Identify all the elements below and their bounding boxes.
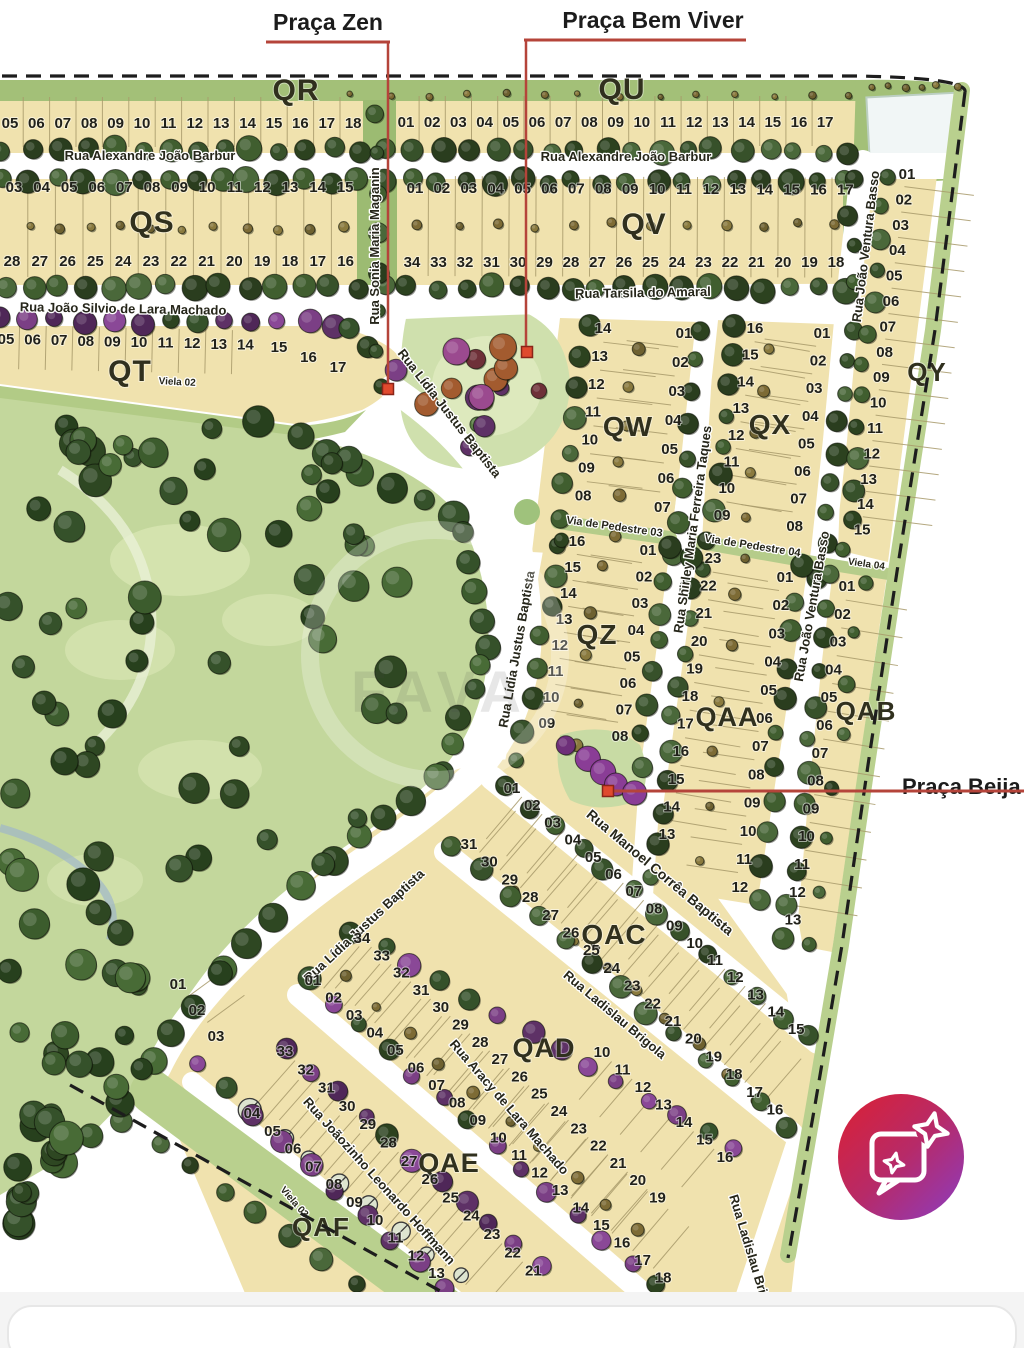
watermark-text: FAVA [351,660,529,725]
lot-number-qac-07: 07 [625,883,642,900]
lot-number-qs-04: 04 [33,179,50,196]
block-label-qaf: QAF [292,1212,350,1242]
praca-beija-label: Praça Beija [902,774,1021,799]
lot-number-qs-26: 26 [59,253,76,270]
lot-number-qad-18: 18 [655,1270,672,1287]
lot-number-qt-11: 11 [158,335,174,352]
lot-number-qaa-15: 15 [668,771,685,788]
lot-number-qae-21: 21 [525,1263,542,1280]
lot-number-qz-08: 08 [612,728,629,745]
lot-number-qt-17: 17 [330,359,347,376]
lot-number-qw-08: 08 [575,487,592,504]
lot-number-qae-28: 28 [380,1135,397,1152]
lot-number-qs-20: 20 [226,253,243,270]
lot-number-qs-15: 15 [337,179,354,196]
lot-number-qad-05: 05 [387,1042,404,1059]
lot-number-qad-26: 26 [511,1068,528,1085]
lot-number-qz-14: 14 [560,585,577,602]
lot-number-qt-16: 16 [300,349,317,366]
masterplan-map: Rua Alexandre João BarburRua Alexandre J… [0,0,1024,1348]
lot-number-qv-12: 12 [703,181,720,198]
lot-number-qv-01: 01 [407,180,424,197]
lot-number-qu-09: 09 [607,114,624,131]
lot-number-qs-21: 21 [198,253,215,270]
lot-number-qv-22: 22 [722,254,739,271]
lot-number-qad-10: 10 [594,1044,611,1061]
lot-number-qr-11: 11 [160,115,176,132]
lot-number-qx-12: 12 [728,427,745,444]
lot-number-qy-05: 05 [886,268,903,285]
lot-number-qaa-12: 12 [732,879,749,896]
lot-number-qr-15: 15 [266,115,283,132]
lot-number-qae-04: 04 [244,1105,261,1122]
praca-marker [522,347,533,358]
lot-number-qab-03: 03 [830,634,847,651]
lot-number-qv-32: 32 [457,254,474,271]
block-label-qu: QU [599,73,646,106]
lot-number-qy-02: 02 [895,191,912,208]
lot-number-qx-08: 08 [786,518,803,535]
lot-number-qt-07: 07 [51,332,68,349]
lot-number-qx-05: 05 [798,435,815,452]
lot-number-qae-01: 01 [170,976,187,993]
lot-number-qad-25: 25 [531,1086,548,1103]
lot-number-qx-02: 02 [810,353,827,370]
lot-number-qw-03: 03 [668,383,685,400]
lot-number-qad-16: 16 [614,1235,631,1252]
lot-number-qab-08: 08 [807,773,824,790]
lot-number-qad-12: 12 [635,1079,652,1096]
lot-number-qv-24: 24 [669,254,686,271]
lot-number-qx-06: 06 [794,463,811,480]
block-label-qaa: QAA [696,702,759,732]
lot-number-qt-14: 14 [237,336,254,353]
lot-number-qr-07: 07 [54,115,71,132]
lot-number-qu-15: 15 [764,114,781,131]
lot-number-qad-16: 16 [717,1149,734,1166]
lot-number-qu-03: 03 [450,114,467,131]
lot-number-qw-10: 10 [581,432,598,449]
lot-number-qae-26: 26 [422,1171,439,1188]
lot-number-qab-01: 01 [839,578,856,595]
lot-number-qz-03: 03 [632,595,649,612]
lot-number-qs-24: 24 [115,253,132,270]
block-label-qs: QS [129,206,174,239]
lot-number-qae-06: 06 [285,1141,302,1158]
lot-number-qx-09: 09 [714,507,731,524]
lot-number-qz-15: 15 [564,559,581,576]
lot-number-qw-14: 14 [595,320,612,337]
lot-number-qac-09: 09 [666,918,683,935]
lot-number-qaa-19: 19 [686,660,703,677]
lot-number-qad-30: 30 [432,999,449,1016]
lot-number-qac-29: 29 [501,871,518,888]
lot-number-qad-04: 04 [366,1025,383,1042]
lot-number-qaa-11: 11 [736,851,752,868]
lot-number-qv-30: 30 [510,254,527,271]
block-label-qv: QV [621,208,666,241]
lot-number-qac-19: 19 [705,1048,722,1065]
lot-number-qac-26: 26 [563,925,580,942]
lot-number-qx-16: 16 [747,320,764,337]
block-label-qad: QAD [513,1033,576,1063]
lot-number-qt-15: 15 [271,339,288,356]
lot-number-qx-10: 10 [718,480,735,497]
lot-number-qad-13: 13 [552,1182,569,1199]
lot-number-qv-17: 17 [837,182,854,199]
lot-number-qt-12: 12 [184,335,201,352]
lot-number-qae-02: 02 [189,1002,206,1019]
lot-number-qu-12: 12 [686,114,703,131]
lot-number-qr-05: 05 [2,115,19,132]
lot-number-qad-03: 03 [346,1007,363,1024]
lot-number-qaa-02: 02 [773,597,790,614]
lot-number-qab-07: 07 [812,745,829,762]
praca-marker [383,384,394,395]
lot-number-qae-10: 10 [367,1212,384,1229]
lot-number-qs-16: 16 [337,253,354,270]
lot-number-qv-29: 29 [536,254,553,271]
lot-number-qaa-20: 20 [691,633,708,650]
lot-number-qad-19: 19 [649,1190,666,1207]
lot-number-qr-18: 18 [345,115,362,132]
lot-number-qx-14: 14 [737,373,754,390]
lot-number-qad-24: 24 [551,1103,568,1120]
lot-number-qaa-04: 04 [764,654,781,671]
lot-number-qv-02: 02 [434,180,451,197]
lot-number-qt-05: 05 [0,331,14,348]
lot-number-qw-13: 13 [591,348,608,365]
lot-number-qv-09: 09 [622,181,639,198]
lot-number-qad-20: 20 [629,1172,646,1189]
lot-number-qs-11: 11 [227,179,243,196]
lot-number-qy-01: 01 [899,166,916,183]
lot-number-qr-14: 14 [239,115,256,132]
lot-number-qac-25: 25 [583,942,600,959]
lot-number-qv-06: 06 [541,181,558,198]
lot-number-qac-02: 02 [524,797,541,814]
lot-number-qad-01: 01 [305,972,322,989]
chat-fab-button[interactable] [838,1094,964,1220]
lot-number-qae-12: 12 [408,1247,425,1264]
lot-number-qx-01: 01 [814,325,831,342]
lot-number-qs-05: 05 [61,179,78,196]
lot-number-qs-12: 12 [254,179,271,196]
lot-number-qx-11: 11 [724,454,740,471]
lot-number-qv-15: 15 [783,181,800,198]
lot-number-qad-07: 07 [428,1077,445,1094]
lot-number-qaa-13: 13 [659,826,676,843]
lot-number-qad-27: 27 [492,1051,509,1068]
lot-number-qu-13: 13 [712,114,729,131]
lot-number-qv-33: 33 [430,254,447,271]
lot-number-qr-16: 16 [292,115,309,132]
bottom-sheet[interactable] [8,1306,1016,1348]
lot-number-qad-31: 31 [413,982,430,999]
lot-number-qad-08: 08 [449,1095,466,1112]
street-label: Viela 02 [158,376,196,389]
listing-map-screenshot: Rua Alexandre João BarburRua Alexandre J… [0,0,1024,1348]
lot-number-qad-10: 10 [490,1130,507,1147]
lot-number-qs-07: 07 [116,179,133,196]
lot-number-qaa-06: 06 [756,710,773,727]
lot-number-qae-03: 03 [208,1028,225,1045]
block-label-qt: QT [108,355,152,388]
lot-number-qad-32: 32 [393,965,410,982]
lot-number-qaa-10: 10 [740,823,757,840]
lot-number-qw-06: 06 [658,470,675,487]
lot-number-qv-18: 18 [828,254,845,271]
lot-number-qaa-08: 08 [748,766,765,783]
lot-number-qr-08: 08 [81,115,98,132]
lot-number-qac-23: 23 [624,978,641,995]
lot-number-qab-13: 13 [785,912,802,929]
lot-number-qab-02: 02 [834,606,851,623]
lot-number-qae-07: 07 [305,1158,322,1175]
lot-number-qv-25: 25 [642,254,659,271]
lot-number-qz-07: 07 [616,702,633,719]
street-label: Rua Alexandre João Barbur [541,149,712,164]
lot-number-qw-04: 04 [665,412,682,429]
lot-number-qw-02: 02 [672,354,689,371]
street-label: Rua Sonia Maria Maganin [367,167,382,325]
lot-number-qv-03: 03 [460,180,477,197]
lot-number-qac-15: 15 [788,1021,805,1038]
lot-number-qaa-18: 18 [682,688,699,705]
lot-number-qr-13: 13 [213,115,230,132]
lot-number-qs-03: 03 [6,179,23,196]
lot-number-qv-08: 08 [595,181,612,198]
lot-number-qac-22: 22 [644,995,661,1012]
lot-number-qz-04: 04 [628,622,645,639]
lot-number-qs-10: 10 [199,179,216,196]
lot-number-qae-32: 32 [297,1061,314,1078]
lot-number-qu-08: 08 [581,114,598,131]
lot-number-qy-13: 13 [860,471,877,488]
lot-number-qs-27: 27 [31,253,48,270]
lot-number-qw-12: 12 [588,376,605,393]
lot-number-qs-08: 08 [144,179,161,196]
lot-number-qu-07: 07 [555,114,572,131]
lot-number-qs-06: 06 [88,179,105,196]
lot-number-qz-06: 06 [620,675,637,692]
lot-number-qae-33: 33 [277,1043,294,1060]
lot-number-qy-10: 10 [870,395,887,412]
lot-number-qu-05: 05 [502,114,519,131]
lot-number-qac-21: 21 [665,1013,682,1030]
lot-number-qac-24: 24 [603,960,620,977]
lot-number-qy-12: 12 [863,445,880,462]
lot-number-qv-16: 16 [810,182,827,199]
lot-number-qz-02: 02 [636,569,653,586]
lot-number-qad-17: 17 [634,1252,651,1269]
lot-number-qac-12: 12 [727,969,744,986]
lot-number-qac-10: 10 [686,935,703,952]
lot-number-qs-13: 13 [282,179,299,196]
praca-zen-label: Praça Zen [273,9,383,35]
lot-number-qs-09: 09 [171,179,188,196]
lot-number-qab-12: 12 [789,884,806,901]
lot-number-qz-16: 16 [569,533,586,550]
block-label-qr: QR [273,74,320,107]
lot-number-qt-10: 10 [131,334,148,351]
lot-number-qac-16: 16 [767,1102,784,1119]
lot-number-qv-34: 34 [404,254,421,271]
lot-number-qac-20: 20 [685,1031,702,1048]
lot-number-qy-15: 15 [854,522,871,539]
lot-number-qad-09: 09 [469,1112,486,1129]
lot-number-qy-07: 07 [879,318,896,335]
lot-number-qs-23: 23 [143,253,160,270]
lot-number-qac-04: 04 [565,832,582,849]
lot-number-qw-09: 09 [578,460,595,477]
lot-number-qad-13: 13 [655,1097,672,1114]
lot-number-qv-05: 05 [514,180,531,197]
lot-number-qv-26: 26 [616,254,633,271]
lot-number-qac-06: 06 [605,866,622,883]
lot-number-qaa-22: 22 [700,578,717,595]
lot-number-qaa-16: 16 [672,743,689,760]
lot-number-qv-07: 07 [568,181,585,198]
lot-number-qu-17: 17 [817,114,834,131]
lot-number-qv-13: 13 [729,181,746,198]
street-label: Rua Alexandre João Barbur [65,148,236,163]
lot-number-qac-18: 18 [726,1066,743,1083]
lot-number-qw-05: 05 [661,441,678,458]
lot-number-qab-11: 11 [794,856,810,873]
lot-number-qad-28: 28 [472,1034,489,1051]
lot-number-qae-27: 27 [401,1153,418,1170]
lot-number-qaa-03: 03 [768,625,785,642]
lot-number-qad-21: 21 [610,1155,627,1172]
lot-number-qac-13: 13 [747,986,764,1003]
lot-number-qv-04: 04 [487,180,504,197]
lot-number-qae-25: 25 [442,1189,459,1206]
lot-number-qad-34: 34 [354,930,371,947]
lot-number-qac-28: 28 [522,889,539,906]
lot-number-qad-06: 06 [408,1060,425,1077]
lot-number-qaa-17: 17 [677,716,694,733]
lot-number-qac-08: 08 [646,900,663,917]
lot-number-qad-12: 12 [531,1165,548,1182]
block-label-qab: QAB [836,696,897,726]
lot-number-qs-14: 14 [309,179,326,196]
lot-number-qu-14: 14 [738,114,755,131]
lot-number-qaa-05: 05 [760,682,777,699]
lot-number-qad-14: 14 [572,1200,589,1217]
lot-number-qab-10: 10 [798,828,815,845]
lot-number-qv-14: 14 [756,181,773,198]
lot-number-qx-15: 15 [742,347,759,364]
lot-number-qae-08: 08 [326,1176,343,1193]
lot-number-qaa-21: 21 [695,605,712,622]
praca-bem-viver-label: Praça Bem Viver [562,7,743,33]
lot-number-qt-06: 06 [24,332,41,349]
lot-number-qu-04: 04 [476,114,493,131]
lot-number-qu-02: 02 [424,114,441,131]
lot-number-qac-03: 03 [544,814,561,831]
lot-number-qu-10: 10 [633,114,650,131]
lot-number-qw-11: 11 [585,404,601,421]
lot-number-qae-05: 05 [264,1123,281,1140]
lot-number-qr-10: 10 [134,115,151,132]
lot-number-qac-05: 05 [585,849,602,866]
lot-number-qac-31: 31 [461,836,478,853]
lot-number-qv-28: 28 [563,254,580,271]
lot-number-qad-11: 11 [615,1062,631,1079]
lot-number-qac-01: 01 [504,780,521,797]
lot-number-qs-19: 19 [254,253,271,270]
lot-number-qs-22: 22 [170,253,187,270]
lot-number-qu-16: 16 [791,114,808,131]
lot-number-qr-09: 09 [107,115,124,132]
lot-number-qs-25: 25 [87,253,104,270]
lot-number-qx-04: 04 [802,408,819,425]
lot-number-qy-06: 06 [883,293,900,310]
lot-number-qad-11: 11 [511,1147,527,1164]
lot-number-qad-29: 29 [452,1017,469,1034]
block-label-qw: QW [603,411,653,442]
lot-number-qab-09: 09 [803,800,820,817]
street-label: Rua Tarsila do Amaral [575,284,711,301]
lot-number-qt-13: 13 [210,336,227,353]
lot-number-qu-06: 06 [529,114,546,131]
lot-number-qu-11: 11 [660,114,676,131]
lot-number-qy-08: 08 [876,344,893,361]
lot-number-qac-30: 30 [481,854,498,871]
lot-number-qs-28: 28 [4,253,21,270]
lot-number-qac-11: 11 [707,952,723,969]
lot-number-qaa-01: 01 [777,569,794,586]
lot-number-qab-06: 06 [816,717,833,734]
block-label-qz: QZ [577,619,618,650]
block-label-qx: QX [749,409,791,440]
lot-number-qv-21: 21 [748,254,765,271]
lot-number-qae-30: 30 [339,1098,356,1115]
lot-number-qy-04: 04 [889,242,906,259]
lot-number-qac-17: 17 [746,1084,763,1101]
lot-number-qz-01: 01 [640,542,657,559]
lot-number-qad-02: 02 [325,990,342,1007]
lot-number-qy-11: 11 [867,420,883,437]
lot-number-qad-33: 33 [373,947,390,964]
lot-number-qad-14: 14 [676,1114,693,1131]
lot-number-qad-23: 23 [570,1120,587,1137]
lot-number-qr-17: 17 [318,115,335,132]
lot-number-qaa-23: 23 [705,550,722,567]
lot-number-qaa-07: 07 [752,738,769,755]
lot-number-qad-22: 22 [590,1138,607,1155]
lot-number-qae-23: 23 [484,1226,501,1243]
lot-number-qr-06: 06 [28,115,45,132]
lot-number-qae-29: 29 [359,1116,376,1133]
lot-number-qae-13: 13 [428,1265,445,1282]
lot-number-qt-09: 09 [104,333,121,350]
lot-number-qae-24: 24 [463,1208,480,1225]
lot-number-qab-05: 05 [821,689,838,706]
lot-number-qr-12: 12 [186,115,203,132]
lot-number-qt-08: 08 [77,333,94,350]
lot-number-qae-22: 22 [504,1244,521,1261]
lot-number-qac-14: 14 [768,1004,785,1021]
lot-number-qad-15: 15 [696,1132,713,1149]
lot-number-qy-09: 09 [873,369,890,386]
lot-number-qv-20: 20 [775,254,792,271]
lot-number-qv-27: 27 [589,254,606,271]
lot-number-qy-14: 14 [857,496,874,513]
lot-number-qv-19: 19 [801,254,818,271]
lot-number-qu-01: 01 [398,114,415,131]
